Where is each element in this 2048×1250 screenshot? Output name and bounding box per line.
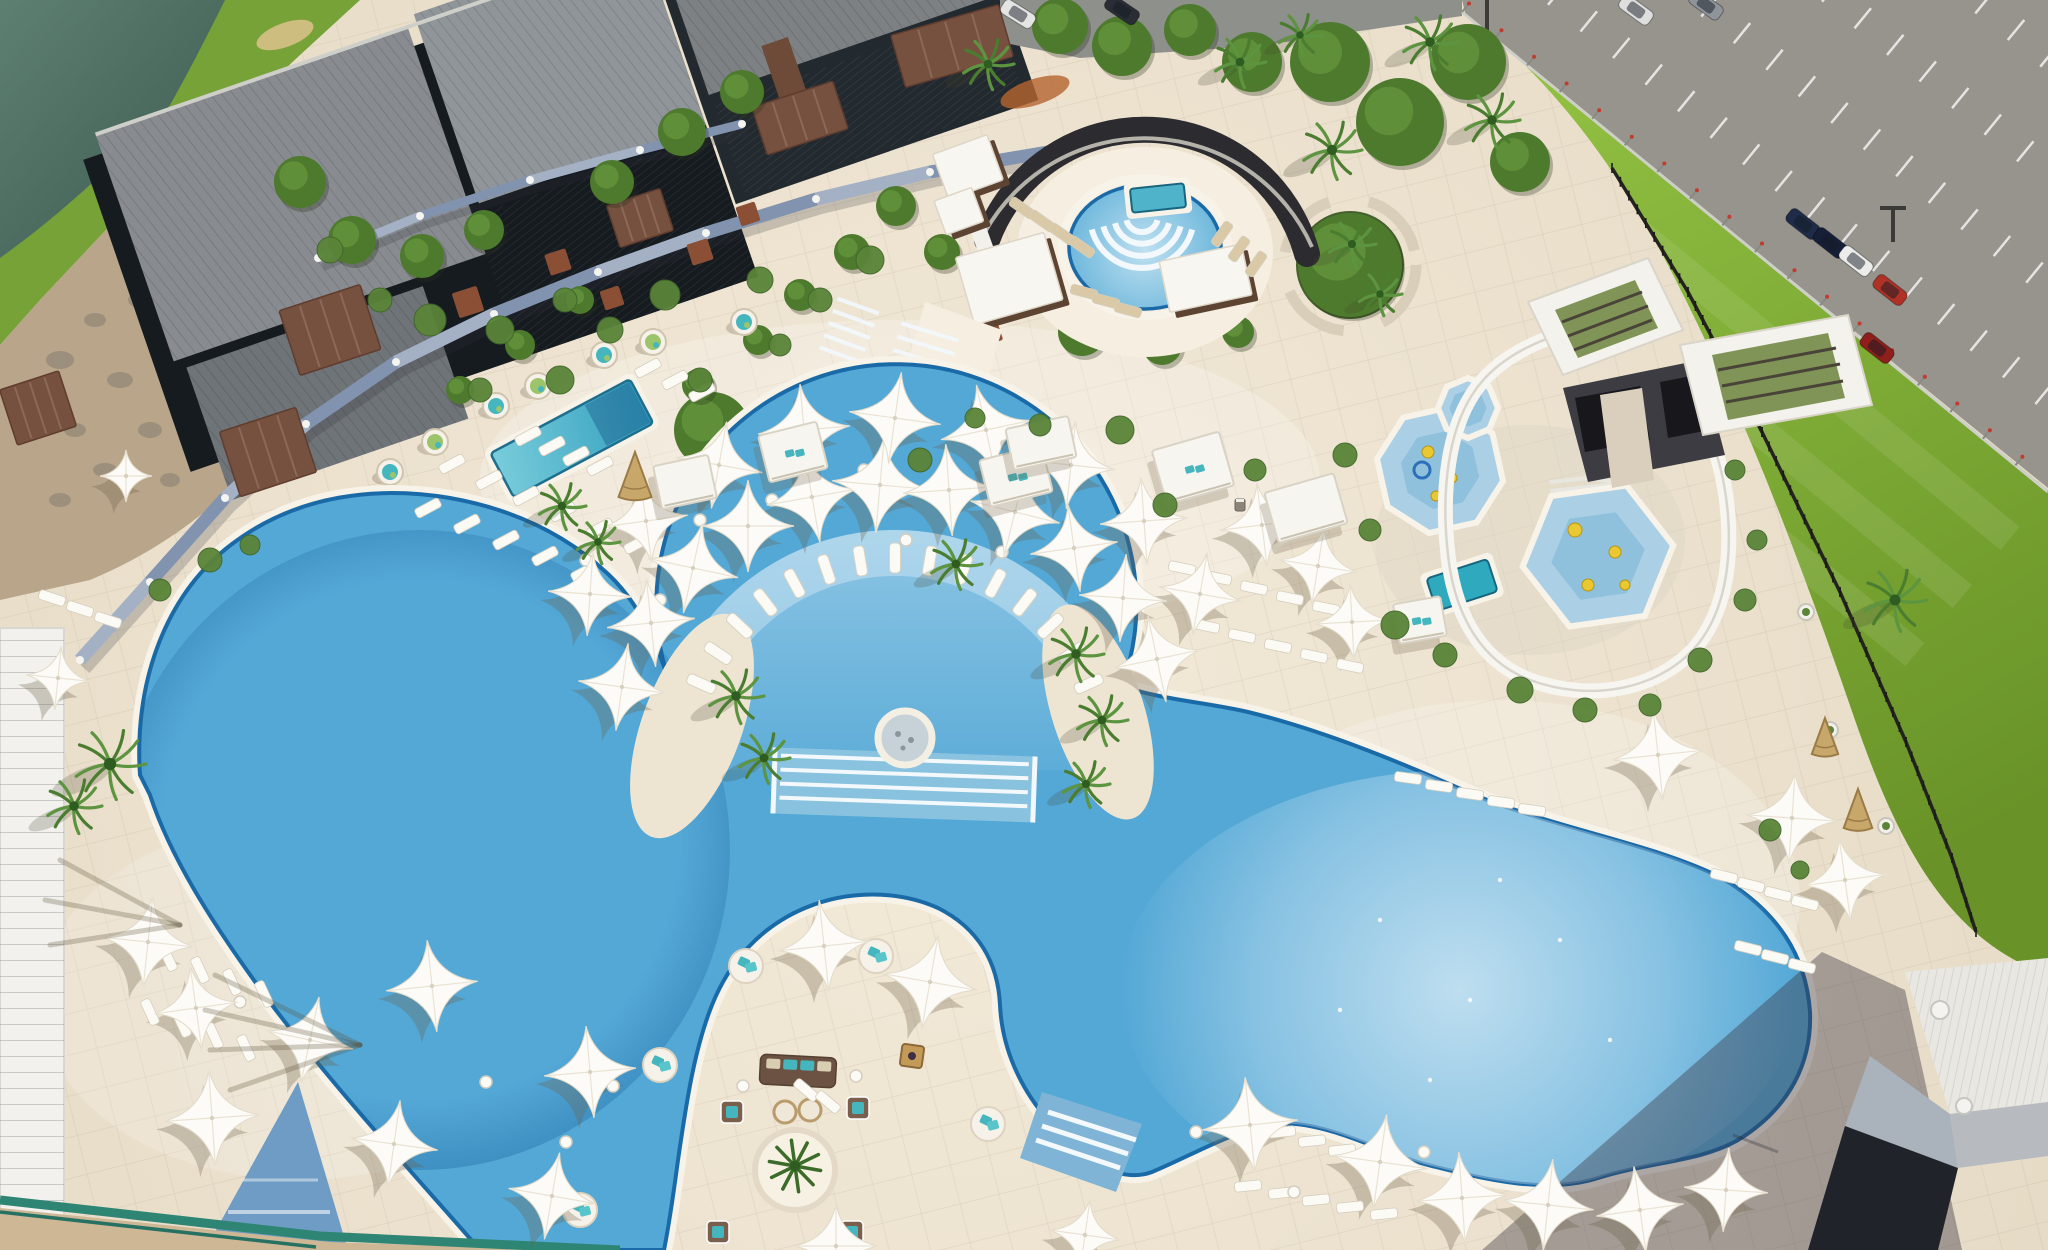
shrub	[1734, 589, 1756, 611]
fence-post	[738, 120, 746, 128]
armchair	[847, 1097, 869, 1119]
water-toy	[1568, 523, 1582, 537]
side-table	[1418, 1146, 1430, 1158]
water-glint	[1428, 1078, 1432, 1082]
shrub	[597, 317, 623, 343]
fence-post	[926, 168, 934, 176]
round-daybed	[859, 939, 893, 973]
rock	[107, 372, 133, 388]
round-daybed	[643, 1048, 677, 1082]
shrub	[317, 237, 343, 263]
shrub	[198, 548, 222, 572]
shrub	[240, 535, 260, 555]
side-table	[900, 534, 912, 546]
side-table	[737, 1080, 749, 1092]
fence-post	[221, 494, 229, 502]
shrub	[546, 366, 574, 394]
side-table	[560, 1136, 572, 1148]
water-glint	[1338, 1008, 1342, 1012]
in-pool-lounger	[890, 543, 901, 573]
fence-post	[392, 358, 400, 366]
shrub	[1725, 460, 1745, 480]
water-toy	[1609, 546, 1621, 558]
shrub	[808, 288, 832, 312]
wicker-chair	[774, 1101, 796, 1123]
fence-post	[416, 212, 424, 220]
shrub	[650, 280, 680, 310]
water-glint	[1558, 938, 1562, 942]
shrub	[149, 579, 171, 601]
round-daybed	[971, 1107, 1005, 1141]
rock	[46, 351, 74, 369]
plant-pot	[1878, 818, 1894, 834]
side-table	[694, 514, 706, 526]
shrub	[1359, 519, 1381, 541]
armchair	[707, 1221, 729, 1243]
fence-post	[302, 420, 310, 428]
water-glint	[1608, 1038, 1612, 1042]
shrub	[1507, 677, 1533, 703]
fence-post	[812, 195, 820, 203]
rock	[84, 313, 106, 327]
rock	[138, 422, 162, 438]
plant-pot	[1798, 604, 1814, 620]
fence-post	[76, 656, 84, 664]
water-toy	[1422, 446, 1434, 458]
shrub	[1573, 698, 1597, 722]
side-table	[850, 1070, 862, 1082]
shrub	[908, 448, 932, 472]
shrub	[553, 288, 577, 312]
shrub	[1639, 694, 1661, 716]
side-table	[1190, 1126, 1202, 1138]
shrub	[965, 408, 985, 428]
aerial-photo: Aerial view of a resort pool complex wit…	[0, 0, 2048, 1250]
water-toy	[1582, 579, 1594, 591]
rock	[49, 493, 71, 507]
shrub	[414, 304, 446, 336]
shrub	[1688, 648, 1712, 672]
side-table	[480, 1076, 492, 1088]
shrub	[1759, 819, 1781, 841]
fence-post	[702, 229, 710, 237]
shrub	[1106, 416, 1134, 444]
shrub	[1433, 643, 1457, 667]
shrub	[856, 246, 884, 274]
shrub	[368, 288, 392, 312]
fence-post	[594, 268, 602, 276]
rock	[160, 473, 180, 487]
fence-post	[526, 176, 534, 184]
adult-spa	[1123, 177, 1192, 220]
shrub	[468, 378, 492, 402]
spa-circle	[878, 711, 932, 765]
shrub	[769, 334, 791, 356]
wicker-chair	[799, 1099, 821, 1121]
side-table	[1288, 1186, 1300, 1198]
shrub	[1747, 530, 1767, 550]
fence-post	[636, 146, 644, 154]
water-glint	[1498, 878, 1502, 882]
shrub	[1791, 861, 1809, 879]
shrub	[747, 267, 773, 293]
towel-bin	[1235, 499, 1245, 511]
shrub	[1153, 493, 1177, 517]
water-toy	[1620, 580, 1630, 590]
shrub	[1333, 443, 1357, 467]
round-daybed	[729, 949, 763, 983]
armchair	[721, 1101, 743, 1123]
fire-table	[900, 1044, 925, 1069]
shrub	[1244, 459, 1266, 481]
shrub	[1381, 611, 1409, 639]
shrub	[486, 316, 514, 344]
shrub	[1029, 414, 1051, 436]
shrub	[688, 368, 712, 392]
water-glint	[1378, 918, 1382, 922]
water-glint	[1468, 998, 1472, 1002]
